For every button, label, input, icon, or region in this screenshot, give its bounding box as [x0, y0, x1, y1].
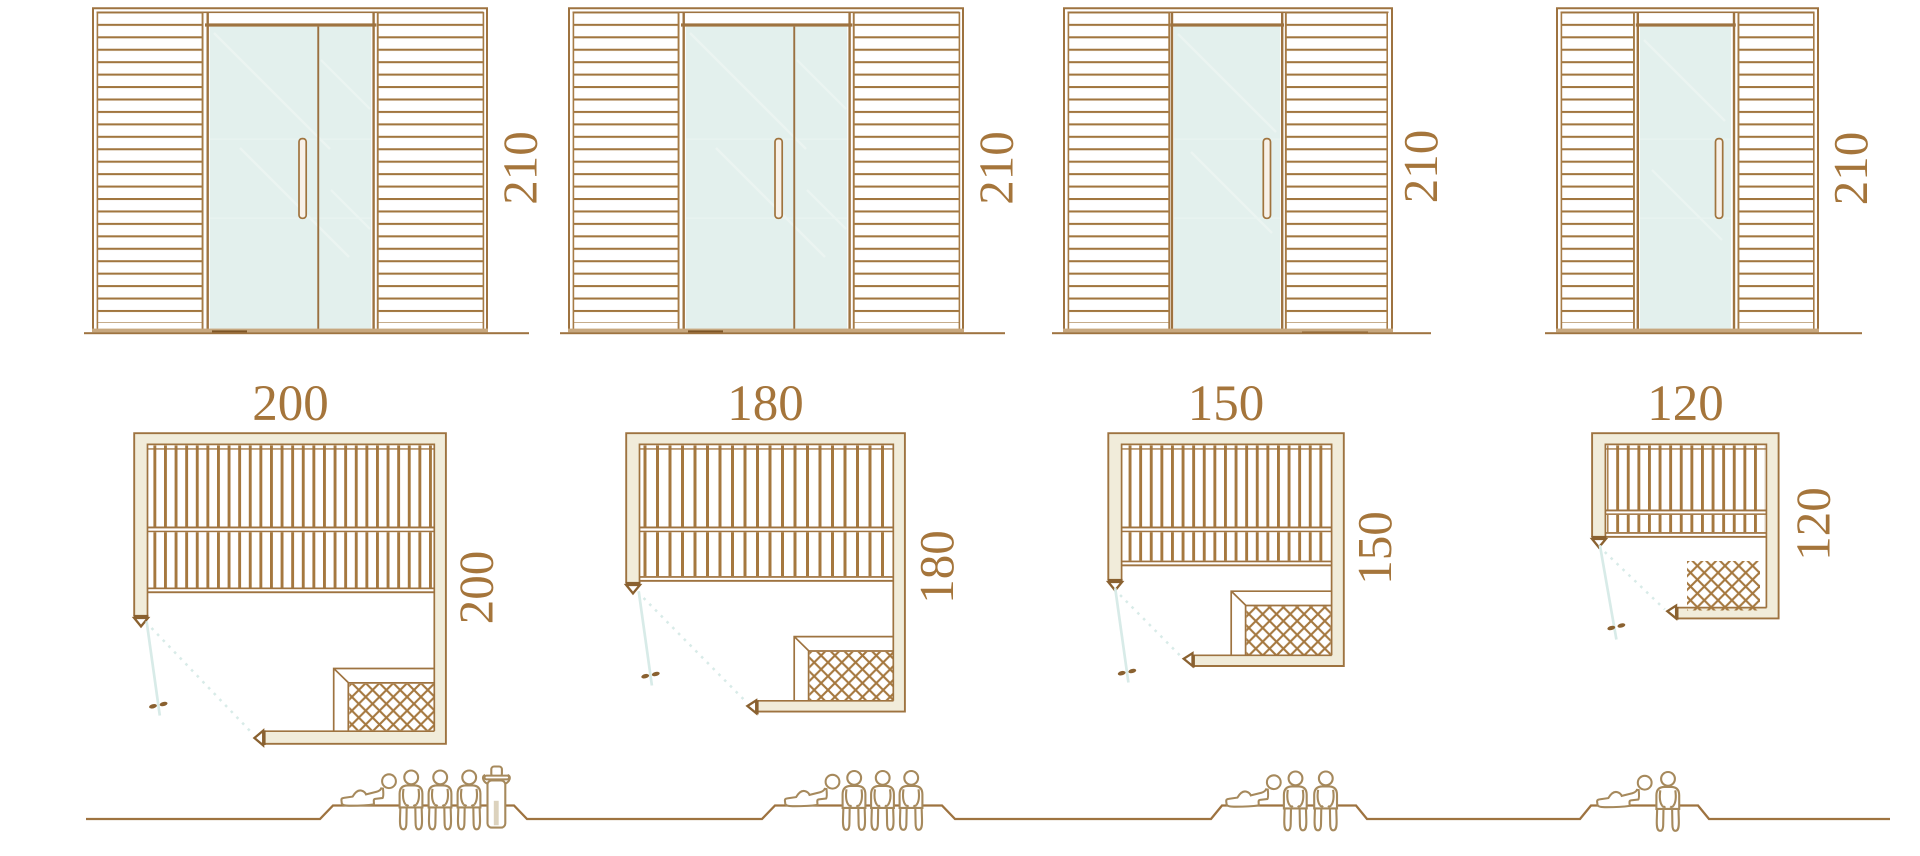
svg-text:200: 200 [449, 551, 504, 625]
svg-text:210: 210 [1823, 132, 1878, 206]
svg-text:120: 120 [1786, 487, 1841, 561]
svg-text:210: 210 [969, 131, 1024, 205]
svg-text:180: 180 [727, 376, 804, 432]
svg-text:210: 210 [1393, 130, 1448, 204]
svg-text:200: 200 [252, 376, 329, 432]
svg-text:120: 120 [1647, 376, 1724, 432]
svg-text:150: 150 [1347, 511, 1402, 585]
svg-text:210: 210 [493, 131, 548, 205]
svg-text:150: 150 [1188, 376, 1265, 432]
svg-text:180: 180 [909, 530, 964, 604]
